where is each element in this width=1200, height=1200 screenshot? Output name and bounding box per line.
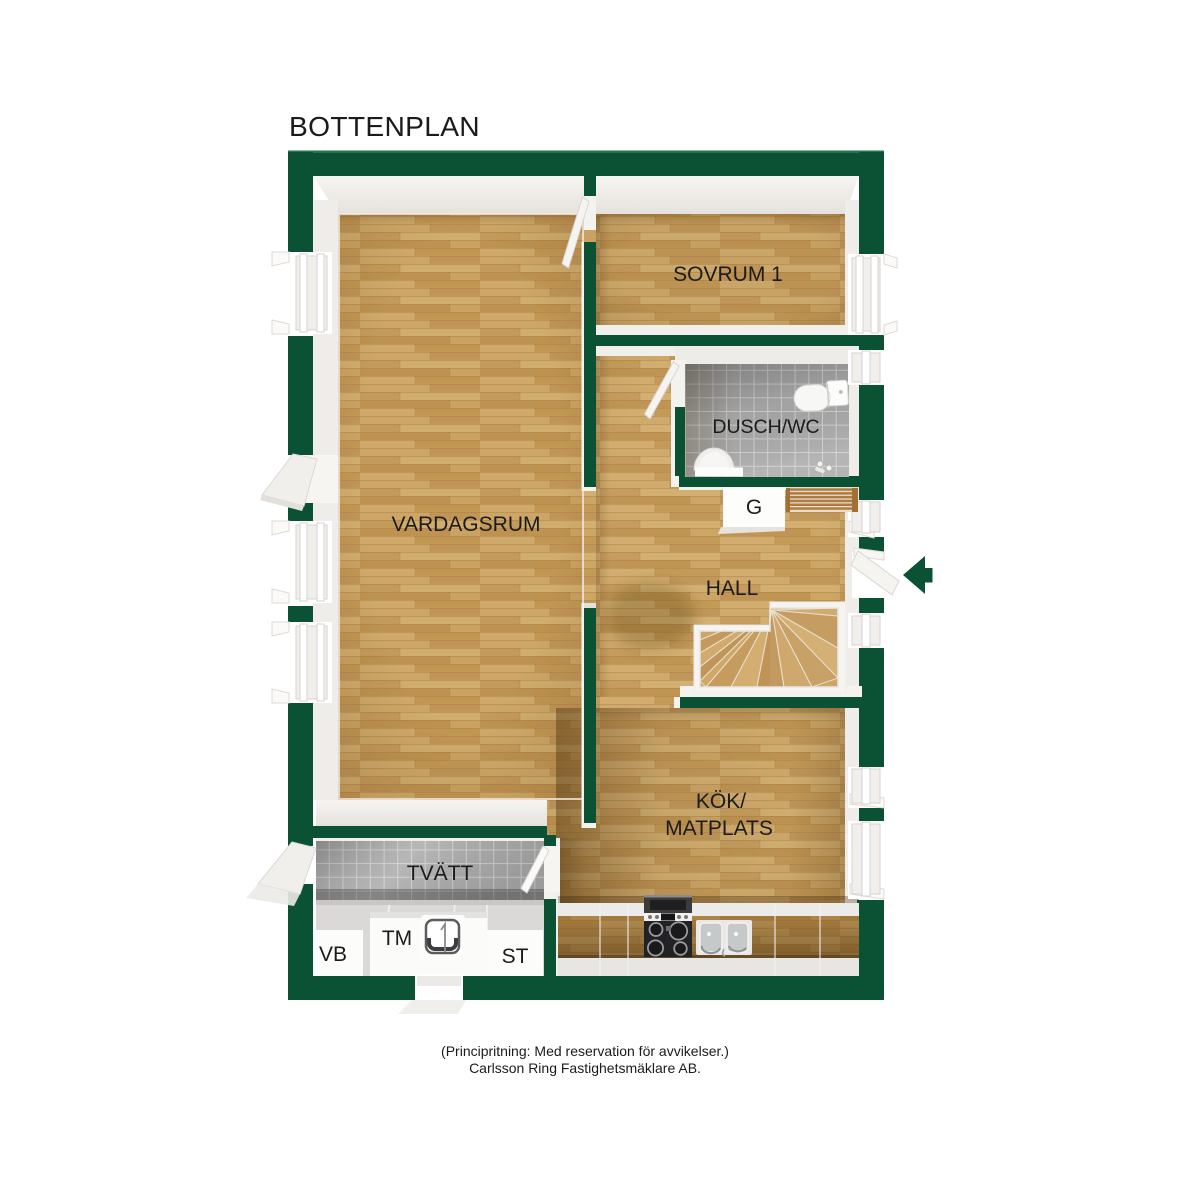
- svg-text:VB: VB: [319, 943, 347, 966]
- svg-text:G: G: [746, 496, 762, 519]
- svg-text:HALL: HALL: [706, 577, 759, 600]
- svg-text:ST: ST: [502, 945, 529, 968]
- svg-text:MATPLATS: MATPLATS: [665, 817, 773, 840]
- svg-text:TM: TM: [382, 927, 412, 950]
- svg-text:BOTTENPLAN: BOTTENPLAN: [289, 110, 480, 142]
- svg-text:TVÄTT: TVÄTT: [407, 862, 474, 885]
- svg-text:DUSCH/WC: DUSCH/WC: [712, 416, 819, 438]
- svg-text:VARDAGSRUM: VARDAGSRUM: [392, 513, 541, 536]
- svg-text:Carlsson Ring Fastighetsmäklar: Carlsson Ring Fastighetsmäklare AB.: [469, 1060, 701, 1076]
- svg-text:SOVRUM 1: SOVRUM 1: [673, 263, 783, 286]
- svg-text:(Principritning: Med reservati: (Principritning: Med reservation för avv…: [441, 1043, 729, 1059]
- svg-text:KÖK/: KÖK/: [696, 790, 746, 813]
